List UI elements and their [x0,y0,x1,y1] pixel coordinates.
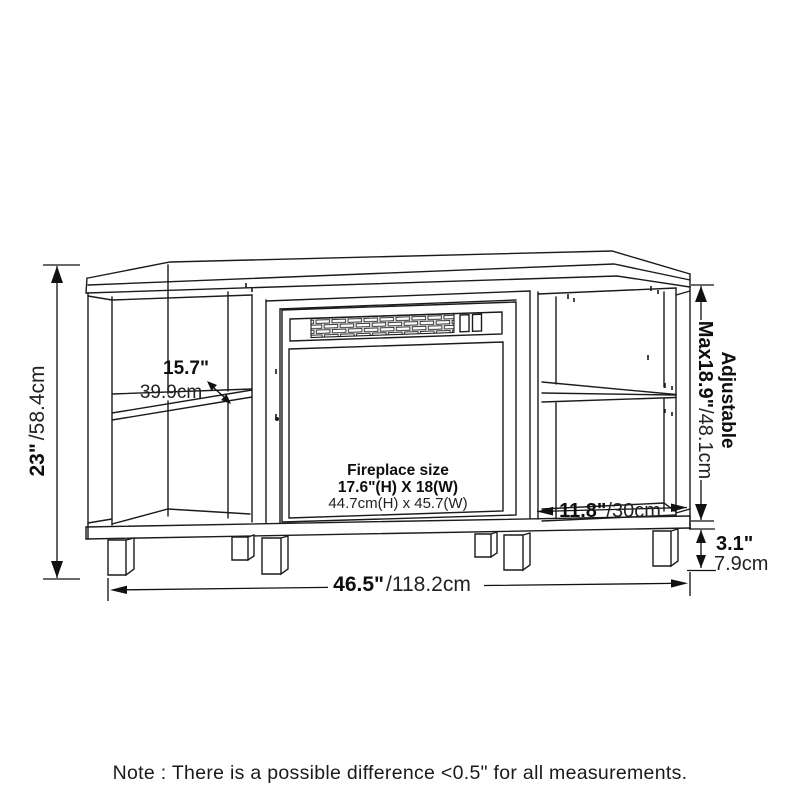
fireplace-size-imperial: 17.6"(H) X 18(W) [338,479,458,496]
diagram-canvas: 23"/58.4cm 15.7" 39.9cm Max18.9"/48.1cm … [0,0,800,800]
dimension-width: 46.5"/118.2cm [108,572,690,601]
dimension-left-shelf: 15.7" 39.9cm [140,358,231,404]
adjustable-label: Adjustable [717,351,738,448]
top-panel [86,251,690,293]
left-shelf-metric: 39.9cm [140,382,202,403]
control-button-2 [473,314,482,331]
leg-height-metric: 7.9cm [714,553,768,575]
fireplace-title: Fireplace size [347,462,449,479]
width-label: 46.5"/118.2cm [333,573,471,596]
dimension-height: 23"/58.4cm [26,265,80,579]
legs [108,529,678,575]
left-shelf-inches: 15.7" [163,358,209,379]
note-text: Note : There is a possible difference <0… [113,762,688,784]
tv-stand-drawing [86,251,690,575]
adjustable-value: Max18.9"/48.1cm [694,321,716,479]
leg-left [108,538,134,575]
dimension-adjustable: Max18.9"/48.1cm Adjustable [691,285,738,521]
leg-mid-back [232,535,254,560]
dimension-leg-height: 3.1" 7.9cm [687,529,768,575]
leg-far-right [653,529,678,566]
fireplace-size-metric: 44.7cm(H) x 45.7(W) [328,495,467,512]
fireplace-caption: Fireplace size 17.6"(H) X 18(W) 44.7cm(H… [328,462,467,512]
right-side-panel [676,287,690,529]
leg-height-inches: 3.1" [716,533,753,555]
right-shelf-section [538,288,676,521]
height-label: 23"/58.4cm [26,365,49,476]
left-side-panel [88,293,112,539]
furniture-dimension-diagram: 23"/58.4cm 15.7" 39.9cm Max18.9"/48.1cm … [0,0,800,800]
leg-mid-front [262,536,288,574]
right-shelf-label: 11.8"/30cm [559,500,661,522]
control-button-1 [460,315,469,332]
leg-right-front [504,533,530,570]
leg-right-back [475,532,497,557]
